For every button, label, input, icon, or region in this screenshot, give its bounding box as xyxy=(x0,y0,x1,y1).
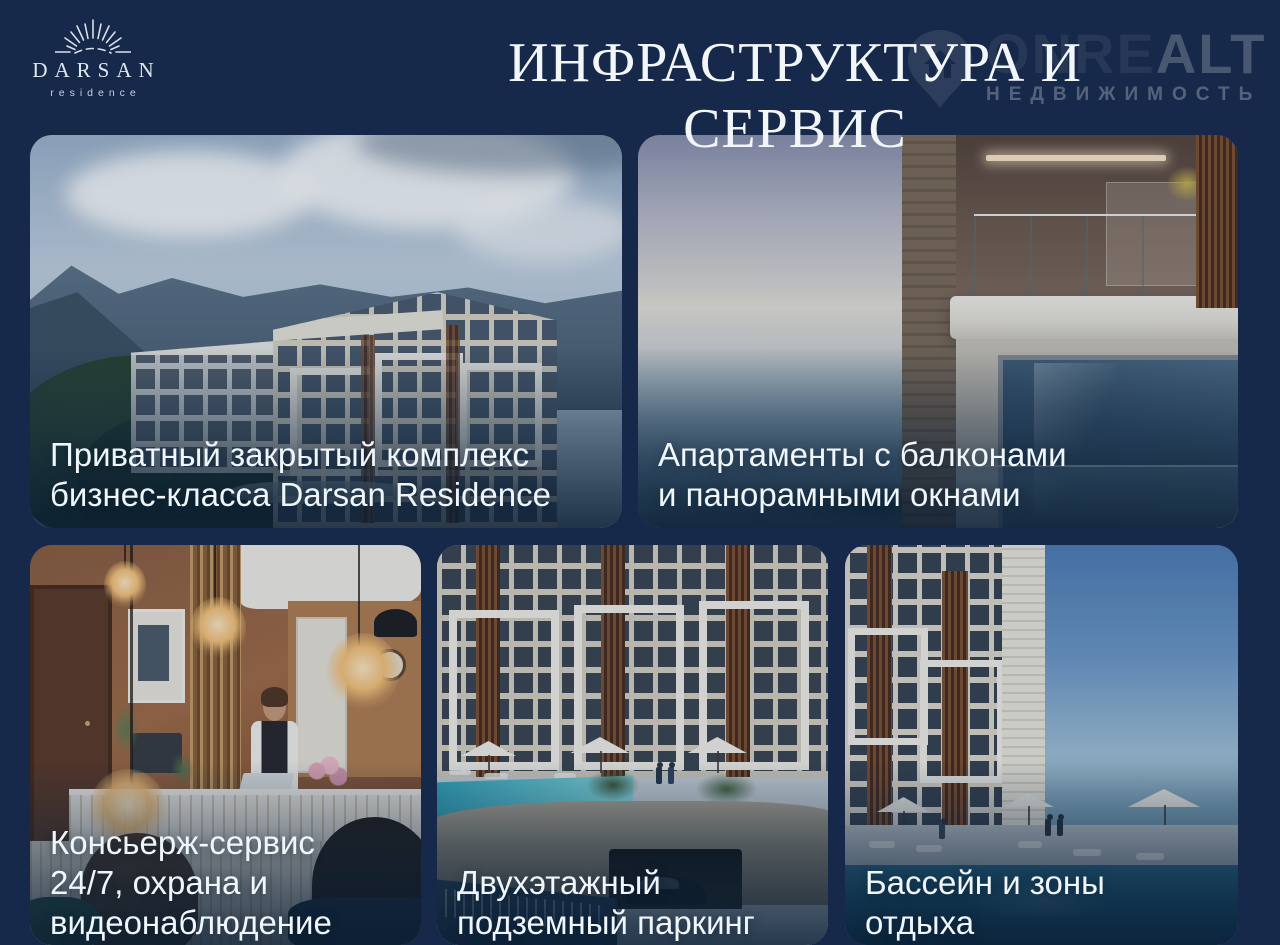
card-private-complex: Приватный закрытый комплекс бизнес-класс… xyxy=(30,135,622,528)
darsan-logo: DARSAN residence xyxy=(25,6,161,99)
slide: { "colors":{"background":"#16294a","titl… xyxy=(0,0,1280,910)
card-caption: Бассейн и зоны отдыха xyxy=(865,863,1224,943)
card-caption: Консьерж-сервис 24/7, охрана и видеонабл… xyxy=(50,823,407,943)
card-apartments-balconies: Апартаменты с балконами и панорамными ок… xyxy=(638,135,1238,528)
card-pool-lounge: Бассейн и зоны отдыха xyxy=(845,545,1238,945)
card-concierge: Консьерж-сервис 24/7, охрана и видеонабл… xyxy=(30,545,421,945)
logo-name: DARSAN xyxy=(25,58,161,83)
page-title: ИНФРАСТРУКТУРА И СЕРВИС xyxy=(430,30,1160,162)
card-caption: Двухэтажный подземный паркинг xyxy=(457,863,814,943)
card-caption: Апартаменты с балконами и панорамными ок… xyxy=(658,435,1224,515)
logo-subtitle: residence xyxy=(25,87,161,99)
card-caption: Приватный закрытый комплекс бизнес-класс… xyxy=(50,435,608,515)
card-underground-parking: Двухэтажный подземный паркинг xyxy=(437,545,828,945)
sunburst-icon xyxy=(25,6,161,56)
